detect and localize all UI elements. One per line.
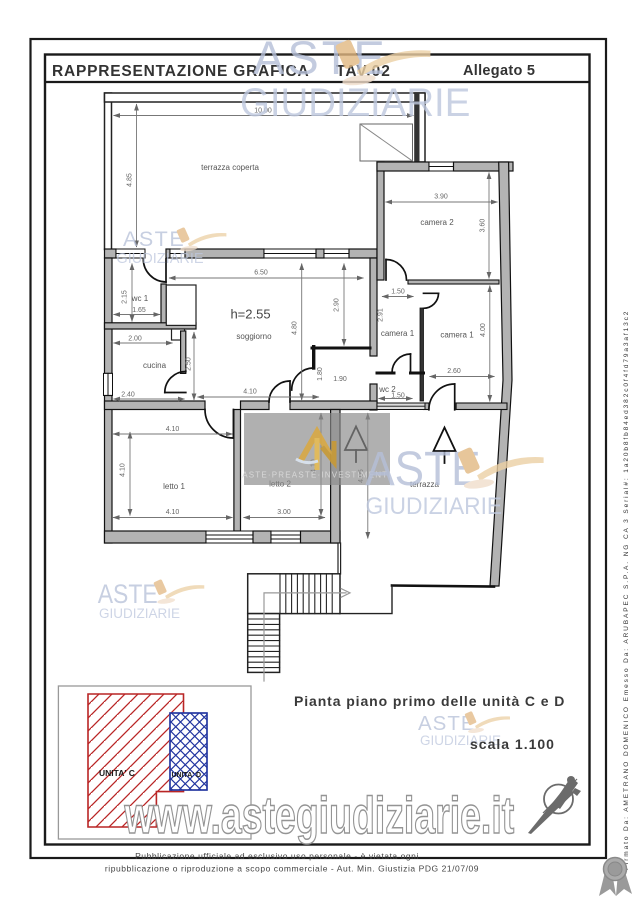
svg-text:4.80: 4.80 xyxy=(292,321,299,335)
svg-text:UNITA' D: UNITA' D xyxy=(172,772,202,779)
svg-text:www.astegiudiziarie.it: www.astegiudiziarie.it xyxy=(124,786,514,845)
svg-text:ASTE: ASTE xyxy=(365,441,480,495)
svg-text:terrazza coperta: terrazza coperta xyxy=(201,163,259,172)
svg-text:3.90: 3.90 xyxy=(434,194,448,201)
svg-text:wc 1: wc 1 xyxy=(131,294,149,303)
svg-text:1.50: 1.50 xyxy=(391,289,405,296)
svg-text:1.65: 1.65 xyxy=(132,307,146,314)
svg-text:h=2.55: h=2.55 xyxy=(230,307,270,322)
svg-text:scala 1.100: scala 1.100 xyxy=(470,736,555,752)
svg-text:letto 1: letto 1 xyxy=(163,482,185,491)
svg-text:camera 1: camera 1 xyxy=(440,331,474,340)
svg-text:Allegato 5: Allegato 5 xyxy=(463,63,535,79)
svg-text:camera 1: camera 1 xyxy=(381,329,415,338)
svg-text:4.00: 4.00 xyxy=(480,323,487,337)
svg-text:4.10: 4.10 xyxy=(243,389,257,396)
svg-text:Firmato Da: AMETRANO DOMENICO: Firmato Da: AMETRANO DOMENICO Emesso Da:… xyxy=(623,310,630,870)
svg-text:2.00: 2.00 xyxy=(128,336,142,343)
svg-text:2.90: 2.90 xyxy=(334,298,341,312)
svg-text:ASTE: ASTE xyxy=(123,227,185,251)
svg-text:3.60: 3.60 xyxy=(480,219,487,233)
svg-text:1.50: 1.50 xyxy=(391,393,405,400)
svg-text:2.91: 2.91 xyxy=(378,308,385,322)
svg-text:4.10: 4.10 xyxy=(166,426,180,433)
svg-text:GIUDIZIARIE: GIUDIZIARIE xyxy=(240,81,470,125)
svg-text:2.15: 2.15 xyxy=(122,290,129,304)
svg-text:cucina: cucina xyxy=(143,361,167,370)
svg-text:2.60: 2.60 xyxy=(447,368,461,375)
svg-text:ASTE: ASTE xyxy=(98,579,158,609)
svg-text:GIUDIZIARIE: GIUDIZIARIE xyxy=(99,606,180,621)
svg-text:4.10: 4.10 xyxy=(120,463,127,477)
svg-text:1.90: 1.90 xyxy=(333,376,347,383)
svg-text:Pubblicazione ufficiale ad esc: Pubblicazione ufficiale ad esclusivo uso… xyxy=(135,851,419,861)
svg-text:soggiorno: soggiorno xyxy=(236,332,272,341)
svg-text:ripubblicazione o riproduzione: ripubblicazione o riproduzione a scopo c… xyxy=(105,864,479,874)
svg-text:UNITA' C: UNITA' C xyxy=(99,768,135,778)
svg-text:3.00: 3.00 xyxy=(277,509,291,516)
svg-text:camera 2: camera 2 xyxy=(420,218,454,227)
svg-text:6.50: 6.50 xyxy=(254,270,268,277)
svg-text:1.80: 1.80 xyxy=(317,367,324,381)
svg-text:GIUDIZIARIE: GIUDIZIARIE xyxy=(116,251,203,267)
svg-text:GIUDIZIARIE: GIUDIZIARIE xyxy=(365,493,502,520)
svg-text:4.85: 4.85 xyxy=(127,173,134,187)
svg-text:2.40: 2.40 xyxy=(121,392,135,399)
svg-text:Pianta piano primo delle unità: Pianta piano primo delle unità C e D xyxy=(294,693,565,709)
svg-text:4.10: 4.10 xyxy=(166,509,180,516)
svg-text:2.50: 2.50 xyxy=(186,357,193,371)
